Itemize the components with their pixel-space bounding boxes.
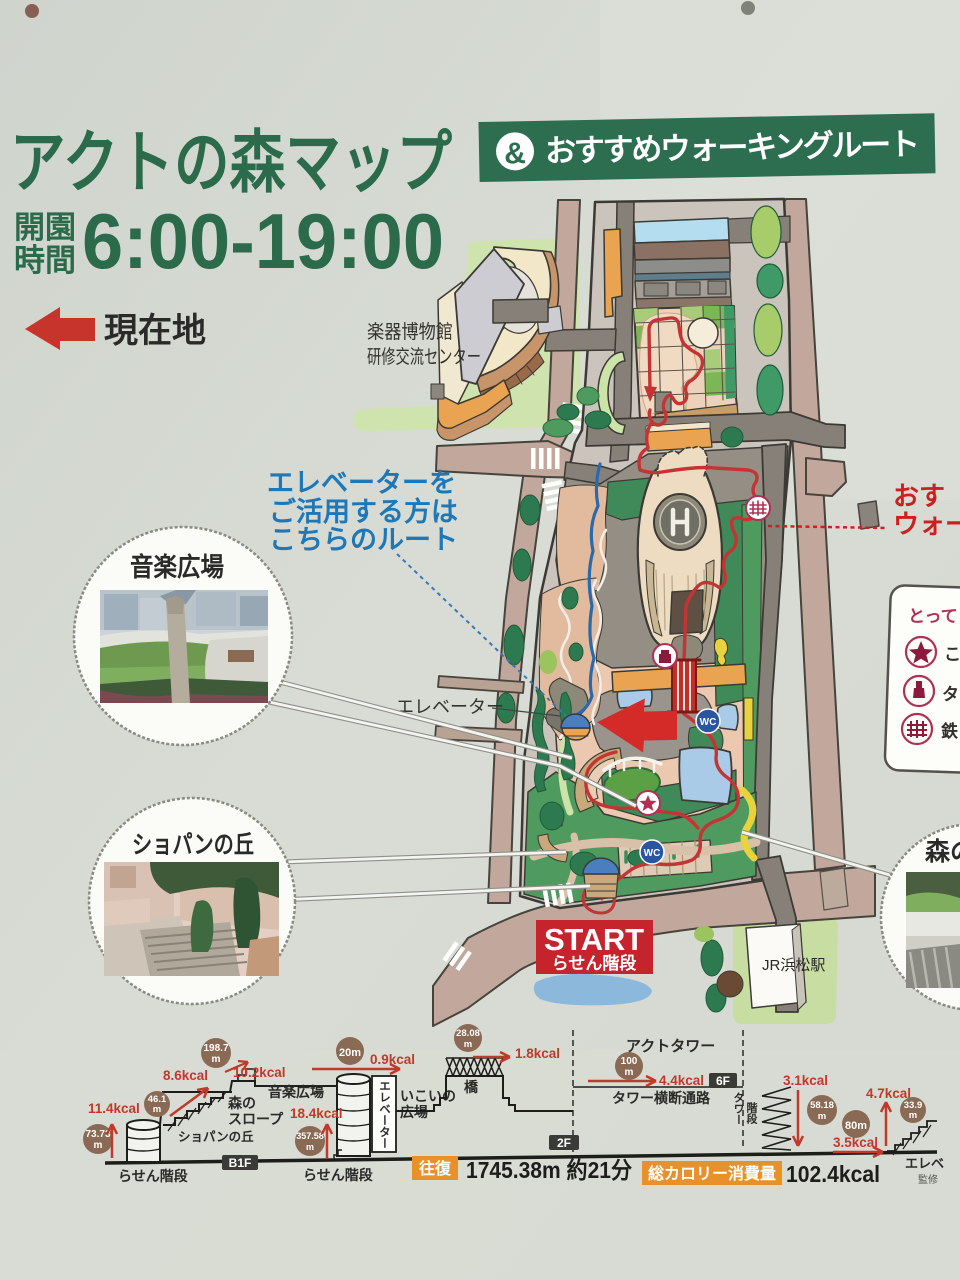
svg-text:20m: 20m [339,1047,361,1059]
svg-text:ウォー: ウォー [893,509,960,539]
svg-text:8.6kcal: 8.6kcal [163,1068,208,1083]
svg-text:橋: 橋 [464,1079,479,1095]
svg-text:監修: 監修 [918,1173,938,1186]
svg-text:アクトの森マップ: アクトの森マップ [10,125,452,201]
svg-text:6:00-19:00: 6:00-19:00 [82,197,444,285]
svg-text:73.73: 73.73 [85,1129,110,1140]
svg-text:階段: 階段 [745,1101,758,1125]
svg-text:森の: 森の [925,838,960,866]
svg-text:時間: 時間 [14,243,76,278]
svg-text:いこいの: いこいの [400,1088,456,1104]
svg-text:2F: 2F [557,1136,571,1150]
svg-text:らせん階段: らせん階段 [118,1168,188,1184]
svg-text:エレベーターを: エレベーターを [267,468,456,498]
svg-text:音楽広場: 音楽広場 [268,1084,324,1100]
svg-text:スロープ: スロープ [228,1111,284,1127]
svg-text:m: m [464,1039,472,1050]
svg-text:らせん階段: らせん階段 [552,953,637,973]
svg-text:楽器博物館: 楽器博物館 [367,321,453,343]
svg-text:&: & [504,137,526,170]
svg-text:とって: とって [908,607,958,626]
svg-text:100: 100 [621,1056,638,1067]
svg-text:3.5kcal: 3.5kcal [833,1135,878,1150]
svg-text:鉄: 鉄 [941,721,958,741]
svg-text:1.8kcal: 1.8kcal [515,1046,560,1061]
svg-text:タワー: タワー [732,1092,745,1125]
svg-text:m: m [153,1104,161,1115]
svg-text:音楽広場: 音楽広場 [130,552,224,582]
svg-text:ショパンの丘: ショパンの丘 [178,1129,254,1144]
svg-text:おす: おす [893,481,945,511]
svg-text:6F: 6F [716,1074,730,1088]
svg-text:総カロリー消費量: 総カロリー消費量 [648,1164,776,1183]
svg-text:m: m [94,1140,103,1151]
svg-text:こちらのルート: こちらのルート [269,525,458,555]
svg-text:森の: 森の [228,1095,256,1111]
svg-text:357.58: 357.58 [296,1131,324,1141]
svg-text:アクトタワー: アクトタワー [626,1038,715,1055]
svg-text:4.4kcal: 4.4kcal [659,1073,704,1088]
svg-text:m: m [818,1111,826,1122]
svg-text:タワー横断通路: タワー横断通路 [612,1090,711,1106]
svg-text:10.2kcal: 10.2kcal [233,1065,286,1080]
svg-text:3.1kcal: 3.1kcal [783,1073,828,1088]
svg-text:現在地: 現在地 [104,312,206,350]
svg-text:開園: 開園 [14,210,76,245]
svg-text:102.4kcal: 102.4kcal [786,1161,880,1187]
svg-text:エレベーター: エレベーター [378,1080,391,1149]
svg-text:エレベ: エレベ [905,1156,944,1171]
svg-text:m: m [306,1142,314,1152]
svg-text:1745.38m 約21分: 1745.38m 約21分 [466,1157,632,1183]
svg-text:こ: こ [944,645,960,664]
svg-text:おすすめウォーキングルート: おすすめウォーキングルート [545,127,921,169]
svg-text:m: m [625,1067,634,1078]
svg-text:4.7kcal: 4.7kcal [866,1086,911,1101]
svg-text:198.7: 198.7 [203,1043,228,1054]
svg-text:JR浜松駅: JR浜松駅 [762,957,825,974]
svg-text:ショパンの丘: ショパンの丘 [132,831,254,859]
svg-text:28.08: 28.08 [456,1028,480,1039]
svg-text:18.4kcal: 18.4kcal [290,1106,343,1121]
svg-text:B1F: B1F [229,1156,252,1170]
svg-text:WC: WC [700,717,717,728]
svg-text:往復: 往復 [419,1159,452,1178]
svg-text:START: START [544,922,644,957]
svg-text:タ: タ [942,685,959,704]
svg-text:58.18: 58.18 [810,1100,834,1111]
svg-text:らせん階段: らせん階段 [303,1167,373,1183]
svg-text:m: m [909,1110,917,1121]
svg-text:ご活用する方は: ご活用する方は [269,496,458,527]
svg-text:11.4kcal: 11.4kcal [88,1101,140,1116]
svg-text:研修交流センター: 研修交流センター [367,346,481,368]
svg-text:80m: 80m [845,1120,867,1132]
svg-text:m: m [212,1054,221,1065]
svg-text:WC: WC [644,848,661,859]
